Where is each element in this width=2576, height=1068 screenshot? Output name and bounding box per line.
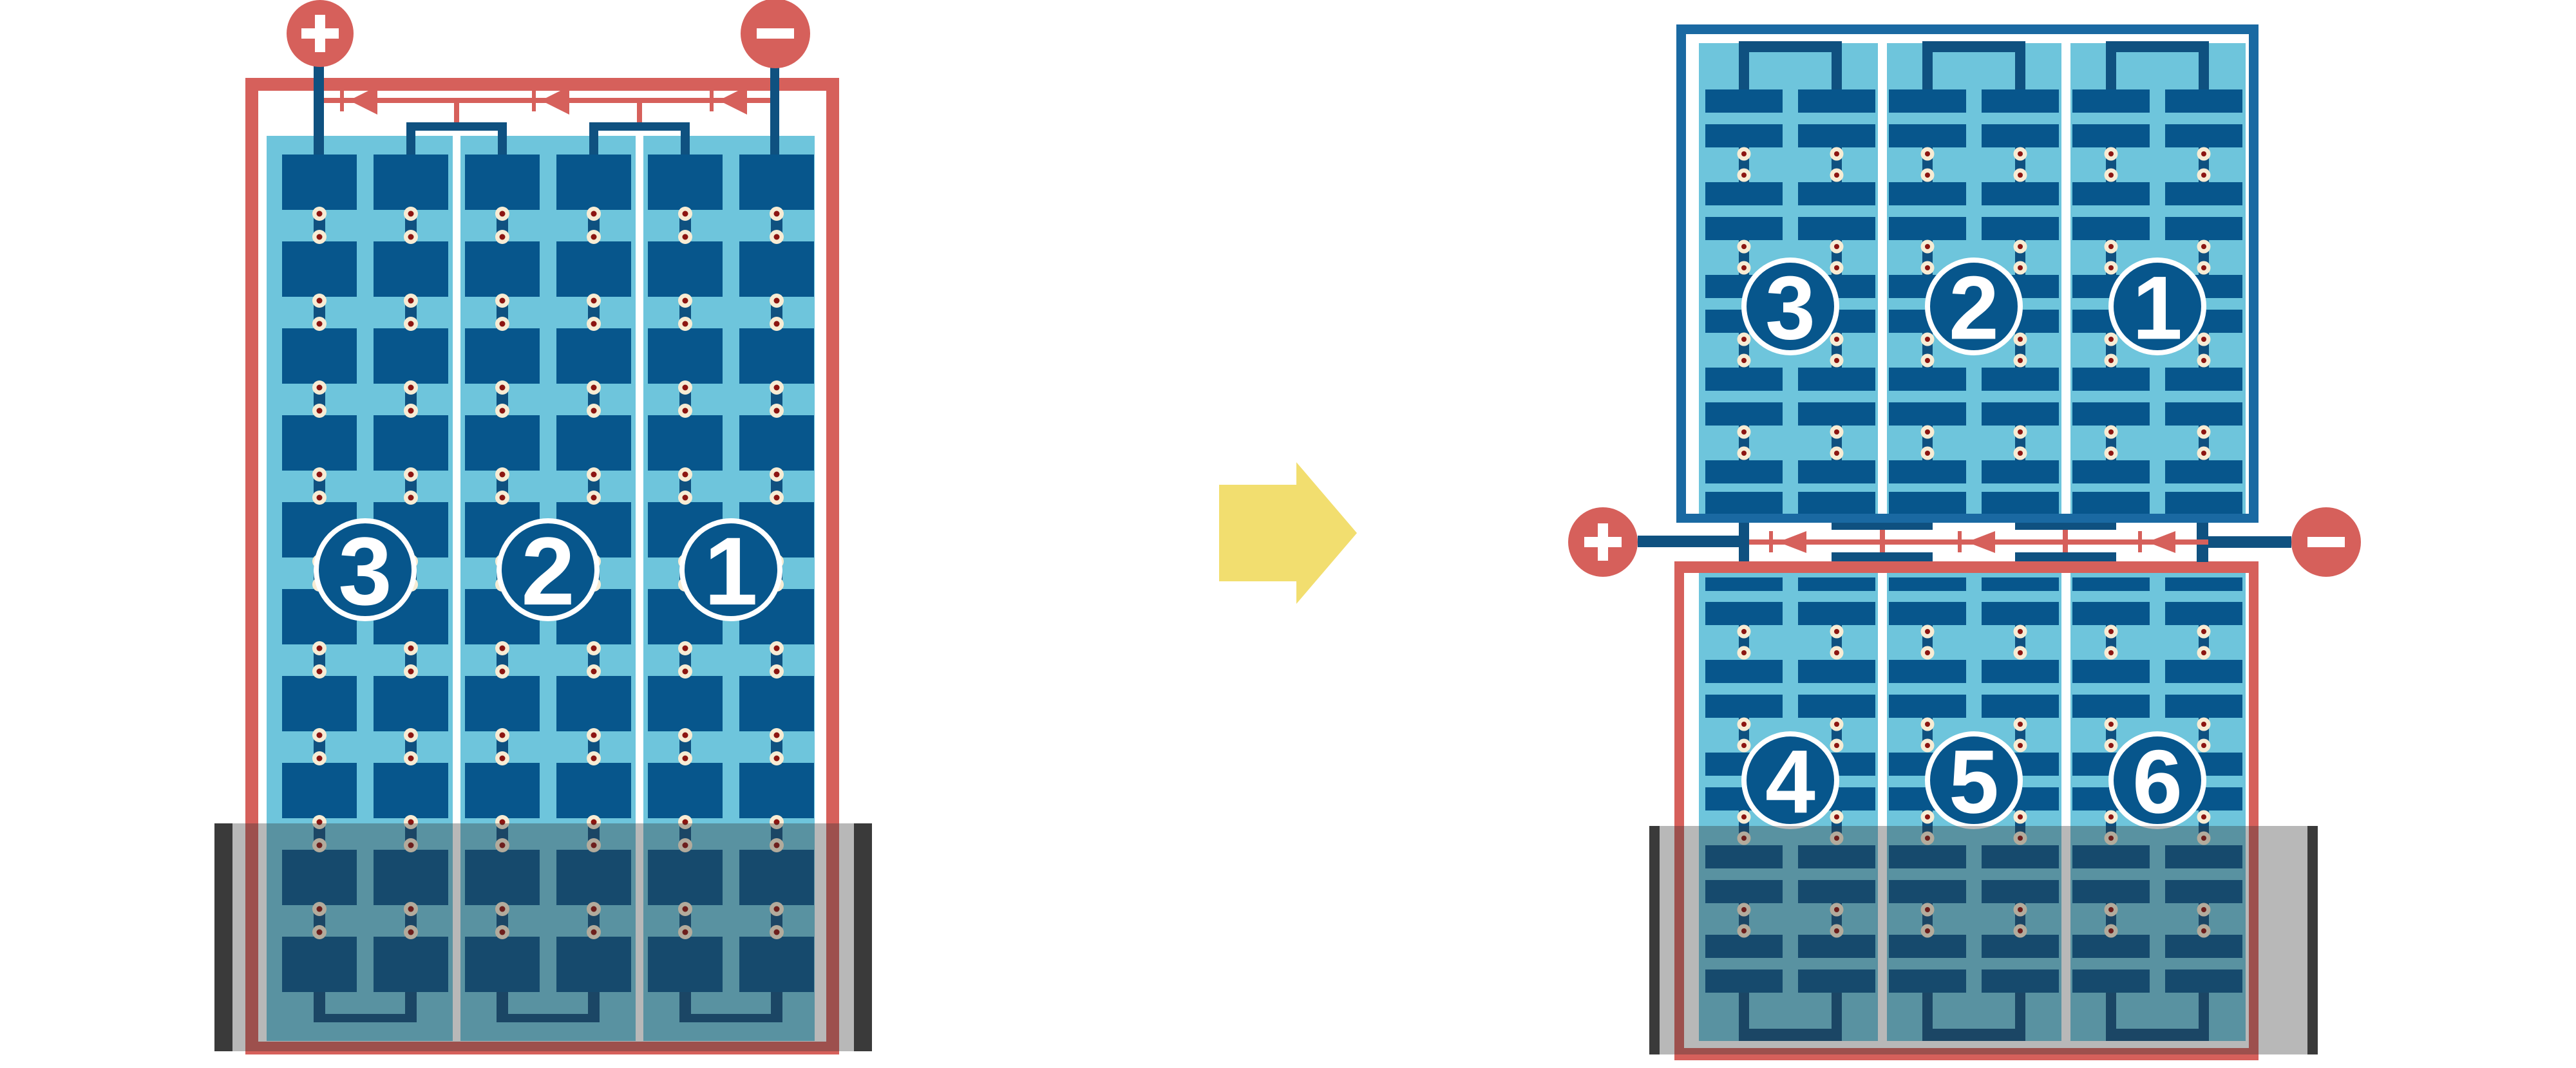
top-half: 321 bbox=[1676, 24, 2259, 523]
shade-bar-right bbox=[854, 823, 872, 1051]
shade-bar-right bbox=[2307, 826, 2318, 1054]
shade-overlay bbox=[1649, 826, 2318, 1054]
half-cut-module-diagram: 321321456 bbox=[0, 0, 2576, 1068]
string-divider bbox=[2061, 43, 2070, 514]
string-number: 2 bbox=[521, 517, 574, 625]
shade-bar-left bbox=[214, 823, 232, 1051]
string-divider bbox=[1878, 43, 1887, 514]
negative-lead bbox=[2208, 536, 2291, 548]
string-number: 3 bbox=[1765, 257, 1815, 358]
string-number: 2 bbox=[1949, 257, 1999, 358]
cross-tab-upper bbox=[1832, 523, 1933, 530]
string-label-4: 4 bbox=[1744, 731, 1837, 832]
negative-terminal-icon bbox=[741, 0, 810, 68]
transform-arrow-icon bbox=[1219, 462, 1357, 604]
positive-terminal-icon bbox=[287, 0, 354, 67]
positive-lead bbox=[314, 66, 324, 155]
string-number: 1 bbox=[2132, 257, 2183, 358]
positive-terminal-icon bbox=[1568, 507, 1638, 577]
string-label-5: 5 bbox=[1927, 731, 2020, 832]
standard-module: 321 bbox=[214, 0, 872, 1054]
string-number: 6 bbox=[2132, 731, 2183, 832]
string-number: 4 bbox=[1765, 731, 1815, 832]
string-label-6: 6 bbox=[2111, 731, 2204, 832]
string-number: 5 bbox=[1949, 731, 1999, 832]
string-label-2: 2 bbox=[1927, 257, 2020, 358]
cross-tab-lower bbox=[1832, 552, 1933, 561]
string-label-1: 1 bbox=[2111, 257, 2204, 358]
cross-tab-upper bbox=[2015, 523, 2116, 530]
negative-lead bbox=[770, 66, 779, 155]
diagram-canvas: 321321456 bbox=[0, 0, 2576, 1068]
string-number: 1 bbox=[704, 517, 757, 625]
negative-terminal-icon bbox=[2291, 507, 2361, 577]
shade-overlay bbox=[214, 823, 872, 1051]
cross-tab-lower bbox=[2015, 552, 2116, 561]
string-number: 3 bbox=[338, 517, 392, 625]
shade-bar-left bbox=[1649, 826, 1660, 1054]
bypass-diode-circuit bbox=[1749, 530, 2208, 553]
half-cut-module: 321456 bbox=[1568, 24, 2361, 1060]
positive-lead bbox=[1638, 536, 1749, 547]
string-label-3: 3 bbox=[1744, 257, 1837, 358]
